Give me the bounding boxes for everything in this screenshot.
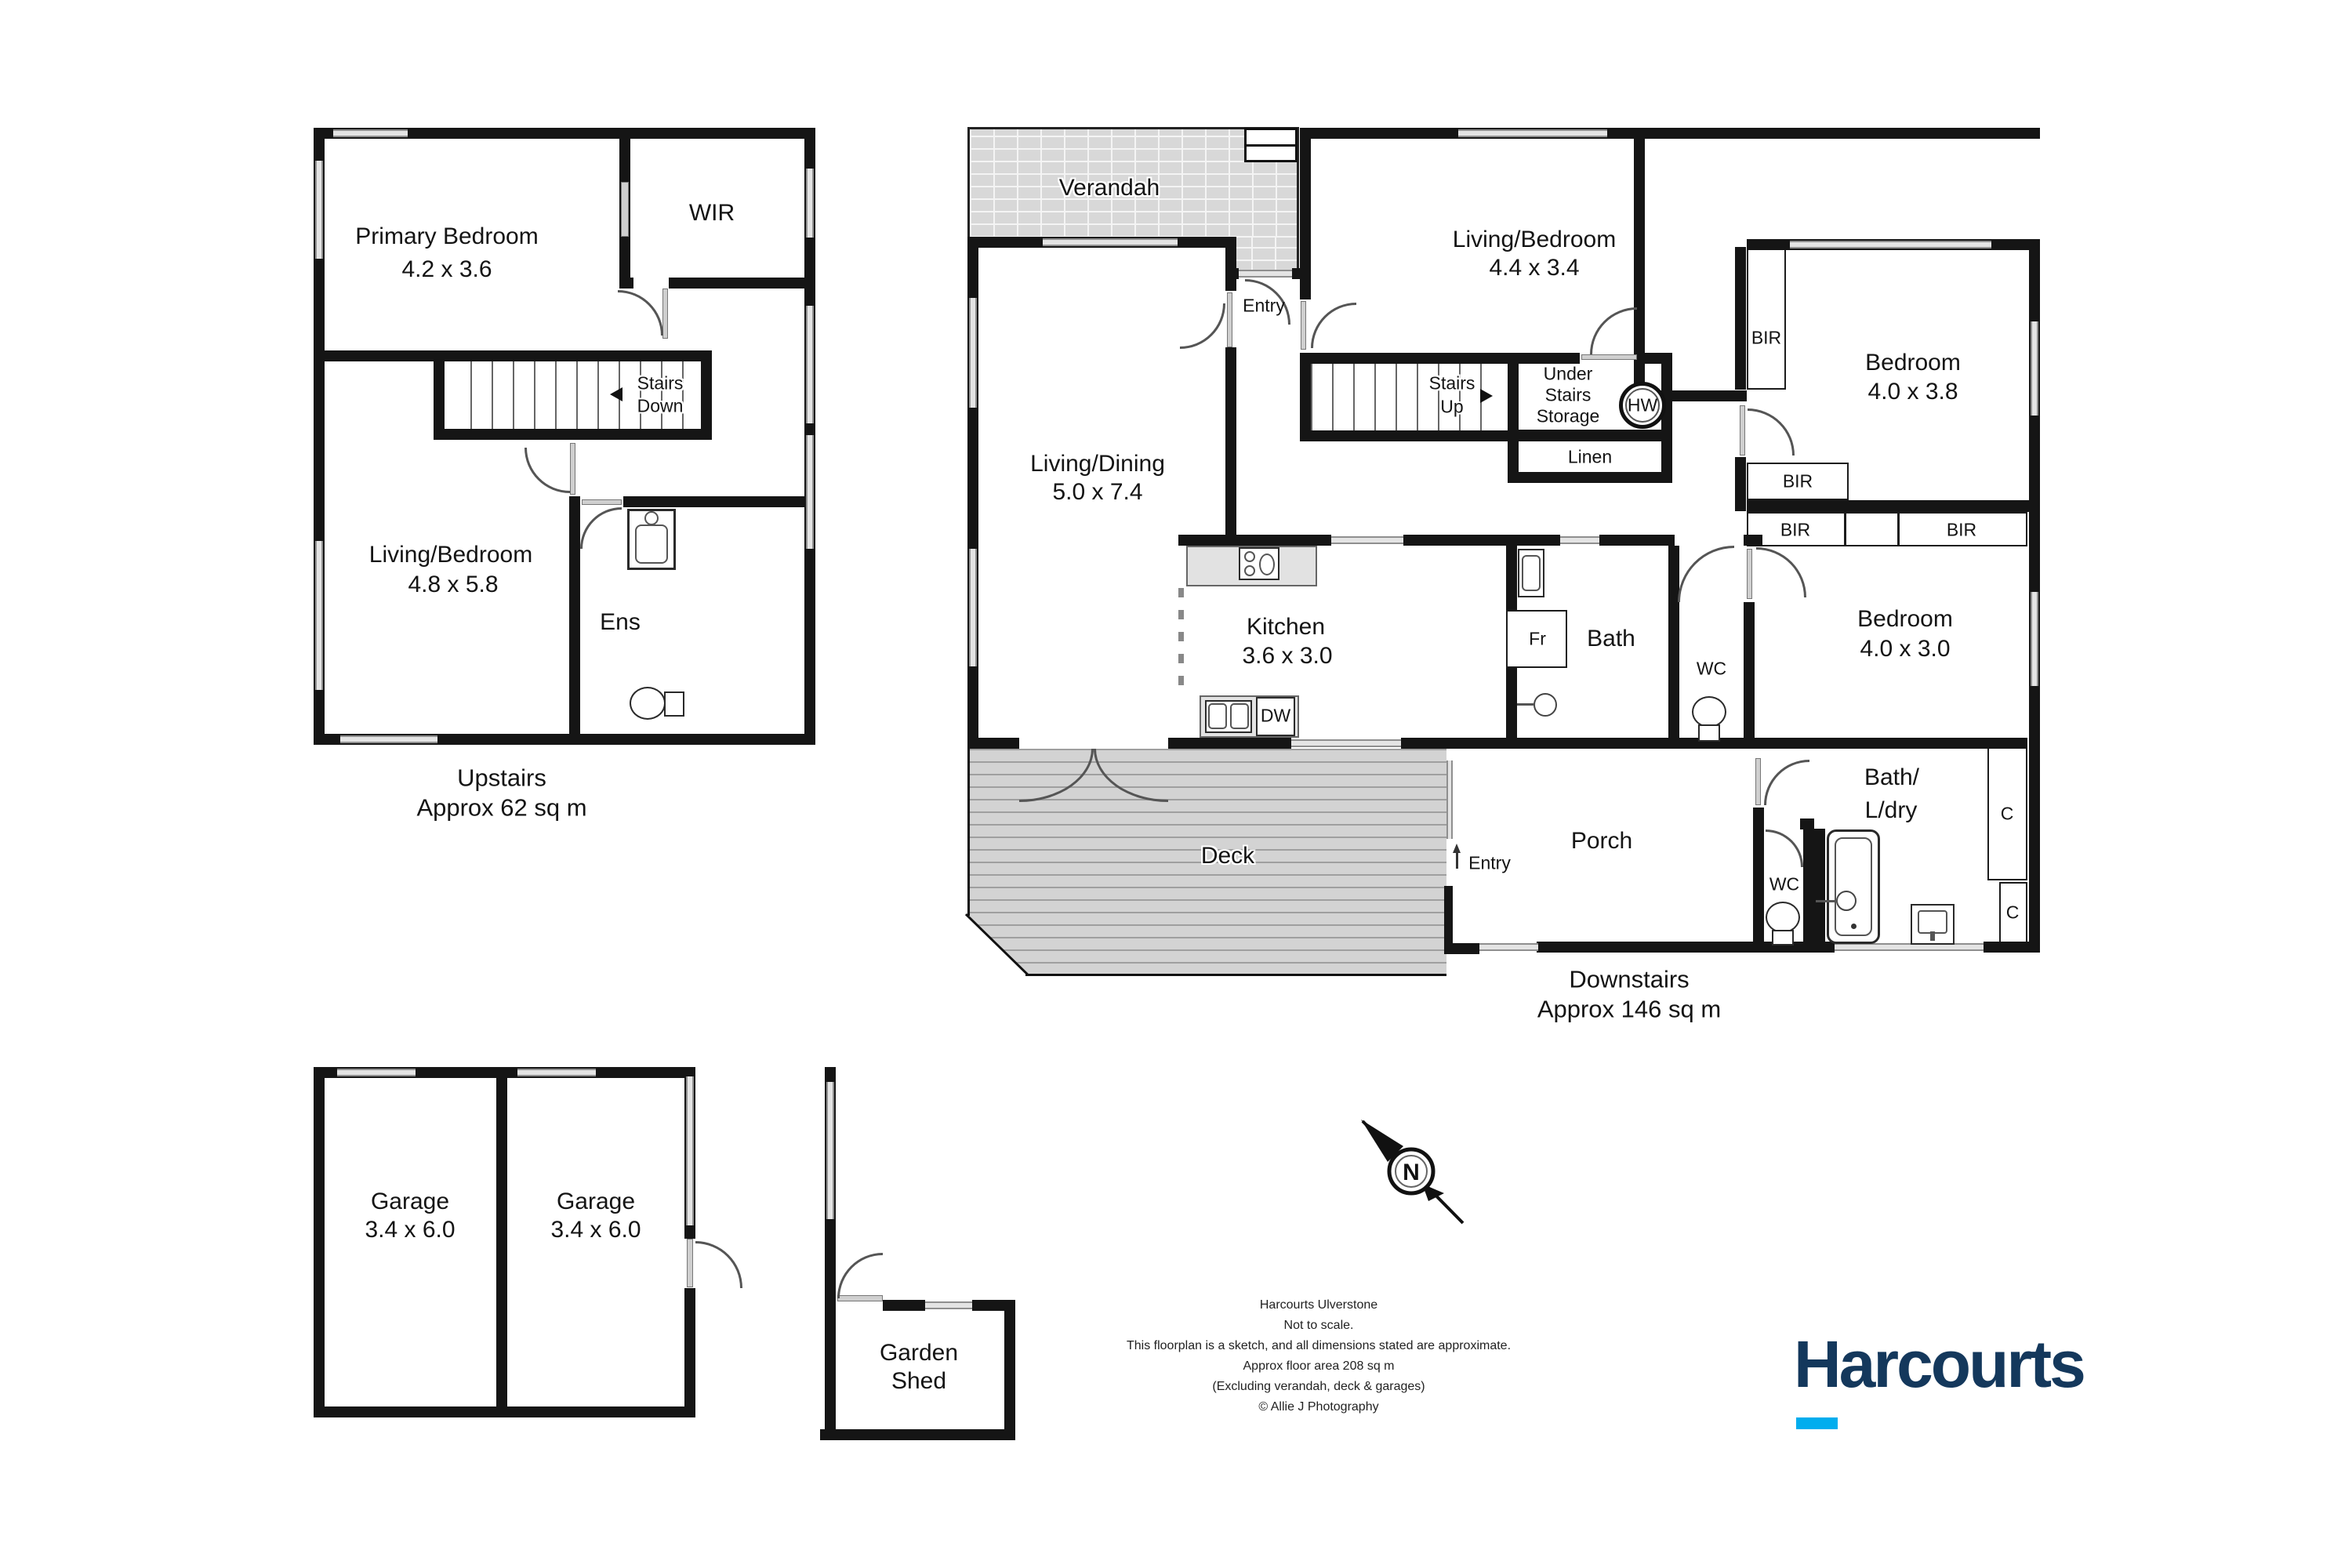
wall xyxy=(1300,430,1508,441)
stairs-down-label: Stairs xyxy=(637,375,684,393)
room-dims-living-dining: 5.0 x 7.4 xyxy=(1052,481,1142,504)
window xyxy=(333,129,408,137)
downstairs-caption: Downstairs xyxy=(1569,967,1689,992)
door-leaf xyxy=(1747,549,1752,599)
room-label-wir: WIR xyxy=(689,201,735,225)
wall xyxy=(1225,347,1236,535)
toilet-icon xyxy=(1766,902,1800,933)
room-label-ens: Ens xyxy=(600,611,641,634)
door-leaf xyxy=(687,1239,693,1287)
sink-tap-icon xyxy=(644,511,659,525)
wall xyxy=(967,738,1019,749)
wall xyxy=(1004,1300,1015,1440)
robe-divider xyxy=(1897,512,1900,546)
room-dims-living-bedroom: 4.4 x 3.4 xyxy=(1489,256,1579,280)
wall xyxy=(434,350,445,440)
room-label-living-dining: Living/Dining xyxy=(1030,452,1165,476)
room-label-bath-ldry: L/dry xyxy=(1865,799,1918,822)
wall xyxy=(1735,457,1746,511)
linen-label: Linen xyxy=(1568,448,1612,466)
wall xyxy=(1236,535,1331,546)
room-label-porch: Porch xyxy=(1571,829,1632,853)
door-arc xyxy=(1748,408,1795,456)
stairs-direction-arrow-icon xyxy=(1480,389,1493,403)
wall xyxy=(1168,738,1291,749)
room-label-living-bedroom-up: Living/Bedroom xyxy=(369,543,532,567)
room-label-garage1: Garage xyxy=(371,1190,449,1214)
sink-basin-icon xyxy=(635,524,668,564)
door-arc xyxy=(618,290,663,336)
door-arc xyxy=(1590,307,1637,354)
floorplan-canvas: Primary Bedroom 4.2 x 3.6 WIR Stairs Dow… xyxy=(0,0,2352,1568)
wall xyxy=(1506,546,1517,610)
entry-label: Entry xyxy=(1243,297,1285,315)
door-arc xyxy=(1764,760,1809,805)
wall xyxy=(1800,818,1814,829)
wall xyxy=(1178,535,1236,546)
toilet-icon xyxy=(1692,696,1726,728)
door-leaf xyxy=(582,499,622,505)
door-leaf xyxy=(662,289,668,339)
door-arc xyxy=(524,448,570,493)
stove-burner-icon xyxy=(1244,565,1255,576)
wall xyxy=(1984,942,2040,953)
wall xyxy=(1506,668,1517,745)
wall xyxy=(1753,808,1764,953)
door-leaf xyxy=(1301,301,1306,350)
disclaimer-line: © Allie J Photography xyxy=(1044,1397,1593,1417)
disclaimer-line: This floorplan is a sketch, and all dime… xyxy=(1044,1336,1593,1356)
window xyxy=(925,1301,972,1309)
wall xyxy=(684,1288,695,1417)
wall xyxy=(883,1300,925,1311)
room-label-garden-shed: Shed xyxy=(891,1370,946,1393)
wall xyxy=(569,496,580,745)
window xyxy=(1446,760,1453,839)
door-leaf xyxy=(621,182,629,237)
window xyxy=(1790,241,1991,249)
wall xyxy=(1508,430,1672,441)
bath-drain-icon xyxy=(1851,924,1857,929)
stove-burner-icon xyxy=(1259,554,1275,575)
door-leaf xyxy=(1227,292,1232,347)
wall xyxy=(1747,500,2040,512)
north-compass-icon: N xyxy=(1353,1112,1471,1229)
window xyxy=(1479,943,1538,951)
wall xyxy=(1300,353,1508,364)
wall xyxy=(1599,535,1675,546)
harcourts-logo-text: Harcourts xyxy=(1794,1327,2084,1401)
stove-burner-icon xyxy=(1244,551,1255,562)
under-stairs-storage-label: Storage xyxy=(1537,408,1600,426)
toilet-tank-icon xyxy=(1772,930,1794,946)
deck-label: Deck xyxy=(1201,844,1254,868)
under-stairs-storage-label: Under xyxy=(1544,365,1593,383)
under-stairs-storage-label: Stairs xyxy=(1545,387,1592,405)
wall xyxy=(314,1406,695,1417)
bir-label: BIR xyxy=(1751,329,1781,347)
deck-edge xyxy=(1025,974,1446,976)
window xyxy=(1835,943,1984,951)
wall xyxy=(1300,353,1311,441)
entry-arrow-icon xyxy=(1456,851,1458,869)
downstairs-area-caption: Approx 146 sq m xyxy=(1537,997,1721,1022)
wall xyxy=(1668,546,1679,749)
fridge-label: Fr xyxy=(1529,630,1546,648)
door-arc xyxy=(1756,547,1806,597)
wall xyxy=(701,361,712,440)
closet-label: C xyxy=(2001,805,2014,823)
door-arc xyxy=(1180,303,1225,349)
room-label-bedroom1: Bedroom xyxy=(1865,351,1961,375)
room-label-bedroom2: Bedroom xyxy=(1857,608,1953,631)
upstairs-caption: Upstairs xyxy=(457,766,546,790)
disclaimer-line: (Excluding verandah, deck & garages) xyxy=(1044,1377,1593,1397)
wall xyxy=(1300,128,2040,139)
wall xyxy=(1508,353,1519,483)
window xyxy=(2031,592,2038,686)
door-arc xyxy=(580,507,622,549)
wall xyxy=(1225,248,1236,291)
closet-label: C xyxy=(2006,904,2020,922)
entry-label: Entry xyxy=(1468,855,1511,873)
wall xyxy=(669,278,815,289)
sink-basin-icon xyxy=(1522,555,1541,591)
door-arc xyxy=(695,1241,742,1288)
compass-north-label: N xyxy=(1403,1160,1420,1185)
wc-label: WC xyxy=(1697,660,1726,678)
robe-divider xyxy=(1844,512,1846,546)
room-dims-garage2: 3.4 x 6.0 xyxy=(550,1218,641,1242)
window xyxy=(806,169,814,238)
disclaimer-block: Harcourts Ulverstone Not to scale. This … xyxy=(1044,1295,1593,1417)
sink-basin-icon xyxy=(1230,703,1249,729)
bath-tap-icon xyxy=(1836,891,1857,911)
bath-tap-arm-icon xyxy=(1816,900,1838,902)
built-in-robe xyxy=(1747,247,1786,390)
open-plan-divider xyxy=(1178,588,1184,695)
window xyxy=(806,435,814,549)
wall xyxy=(1300,139,1311,299)
wall xyxy=(820,1429,1015,1440)
stairs-up-label: Up xyxy=(1440,398,1463,416)
upstairs-area-caption: Approx 62 sq m xyxy=(416,796,586,820)
disclaimer-line: Approx floor area 208 sq m xyxy=(1044,1356,1593,1377)
door-arc xyxy=(1678,546,1734,602)
wall xyxy=(1403,535,1560,546)
room-dims-bedroom1: 4.0 x 3.8 xyxy=(1867,380,1958,404)
room-label-living-bedroom: Living/Bedroom xyxy=(1453,228,1616,252)
deck-edge xyxy=(967,749,970,916)
wall xyxy=(314,350,712,361)
wall xyxy=(623,496,804,507)
toilet-tank-icon xyxy=(664,691,684,717)
entry-arrow-icon xyxy=(1453,844,1461,853)
wall xyxy=(1508,472,1672,483)
bir-label: BIR xyxy=(1780,521,1810,539)
window xyxy=(337,1069,416,1076)
hw-label: HW xyxy=(1628,397,1657,415)
dishwasher-label: DW xyxy=(1261,707,1290,725)
shower-icon xyxy=(1534,693,1557,717)
window xyxy=(826,1082,834,1219)
wall xyxy=(1756,942,1835,953)
room-dims-primary-bedroom: 4.2 x 3.6 xyxy=(401,258,492,281)
window xyxy=(2031,321,2038,416)
window xyxy=(1291,739,1401,747)
wc-label: WC xyxy=(1769,876,1799,894)
wall xyxy=(619,278,633,289)
room-label-bath-ldry: Bath/ xyxy=(1864,766,1919,789)
window xyxy=(969,549,977,666)
harcourts-logo-accent-bar xyxy=(1796,1417,1838,1429)
room-dims-garage1: 3.4 x 6.0 xyxy=(365,1218,455,1242)
toilet-icon xyxy=(630,687,666,720)
disclaimer-line: Not to scale. xyxy=(1044,1316,1593,1336)
wall xyxy=(1661,353,1672,483)
window xyxy=(315,541,323,690)
wall xyxy=(1537,942,1756,953)
door-leaf xyxy=(1755,758,1761,805)
opening xyxy=(1560,536,1599,544)
wall xyxy=(314,1067,325,1417)
window xyxy=(340,735,437,743)
window xyxy=(969,298,977,408)
door-leaf xyxy=(1740,405,1745,456)
window xyxy=(315,161,323,259)
stairs-up-label: Stairs xyxy=(1429,375,1475,393)
window xyxy=(686,1076,694,1225)
window xyxy=(1043,238,1178,246)
bathtub-inner xyxy=(1835,837,1872,936)
toilet-tank-icon xyxy=(1698,724,1720,742)
room-dims-kitchen: 3.6 x 3.0 xyxy=(1242,644,1332,668)
room-label-verandah: Verandah xyxy=(1059,176,1160,200)
verandah-step-line xyxy=(1244,144,1298,147)
disclaimer-line: Harcourts Ulverstone xyxy=(1044,1295,1593,1316)
entry-door-threshold xyxy=(1239,270,1292,278)
room-label-bath: Bath xyxy=(1587,627,1635,651)
window xyxy=(517,1069,596,1076)
wall xyxy=(1444,943,1479,954)
door-arc xyxy=(1766,829,1803,867)
wall xyxy=(1803,829,1814,953)
door-arc xyxy=(1311,303,1356,348)
sink-basin-icon xyxy=(1918,910,1947,934)
wall xyxy=(1735,247,1746,390)
wall xyxy=(1744,535,1762,546)
room-label-garage2: Garage xyxy=(557,1190,635,1214)
opening xyxy=(1331,536,1403,544)
wall xyxy=(434,429,712,440)
room-label-kitchen: Kitchen xyxy=(1247,615,1325,639)
wall xyxy=(1814,829,1825,953)
stairs-direction-arrow-icon xyxy=(610,387,622,401)
room-dims-bedroom2: 4.0 x 3.0 xyxy=(1860,637,1950,661)
window xyxy=(806,306,814,423)
room-label-primary-bedroom: Primary Bedroom xyxy=(355,225,538,249)
wall xyxy=(1744,602,1755,749)
door-leaf xyxy=(570,443,575,495)
stairs-down-label: Down xyxy=(637,397,684,416)
room-label-garden-shed: Garden xyxy=(880,1341,958,1365)
wall xyxy=(496,1078,507,1406)
shower-arm-icon xyxy=(1517,703,1534,706)
sink-tap-icon xyxy=(1930,931,1935,941)
sink-basin-icon xyxy=(1208,703,1227,729)
bir-label: BIR xyxy=(1783,473,1813,491)
bir-label: BIR xyxy=(1947,521,1976,539)
door-arc xyxy=(837,1253,883,1298)
harcourts-logo: Harcourts xyxy=(1794,1331,2131,1441)
window xyxy=(1458,129,1607,137)
room-dims-living-bedroom-up: 4.8 x 5.8 xyxy=(408,573,498,597)
door-leaf xyxy=(1581,354,1637,360)
